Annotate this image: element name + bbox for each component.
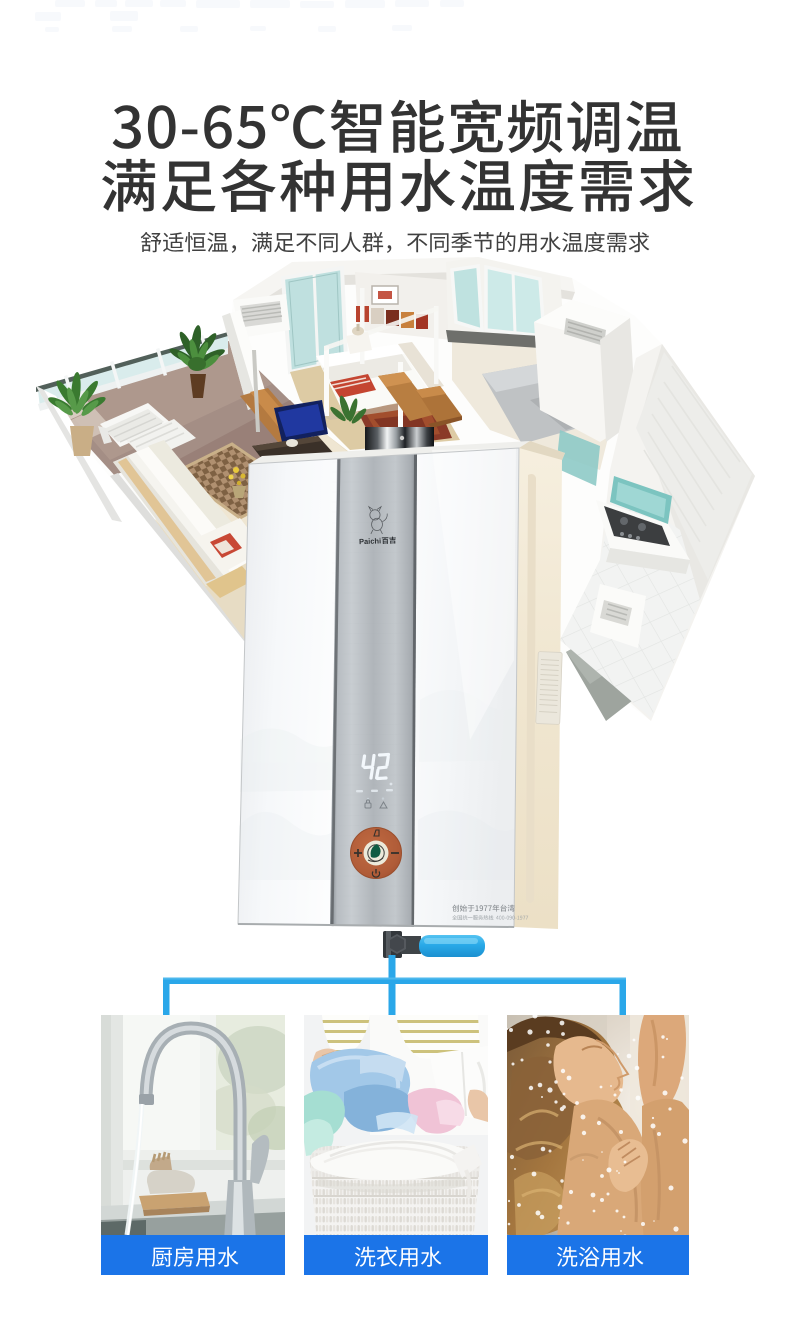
- svg-text:Paichi: Paichi: [359, 536, 381, 546]
